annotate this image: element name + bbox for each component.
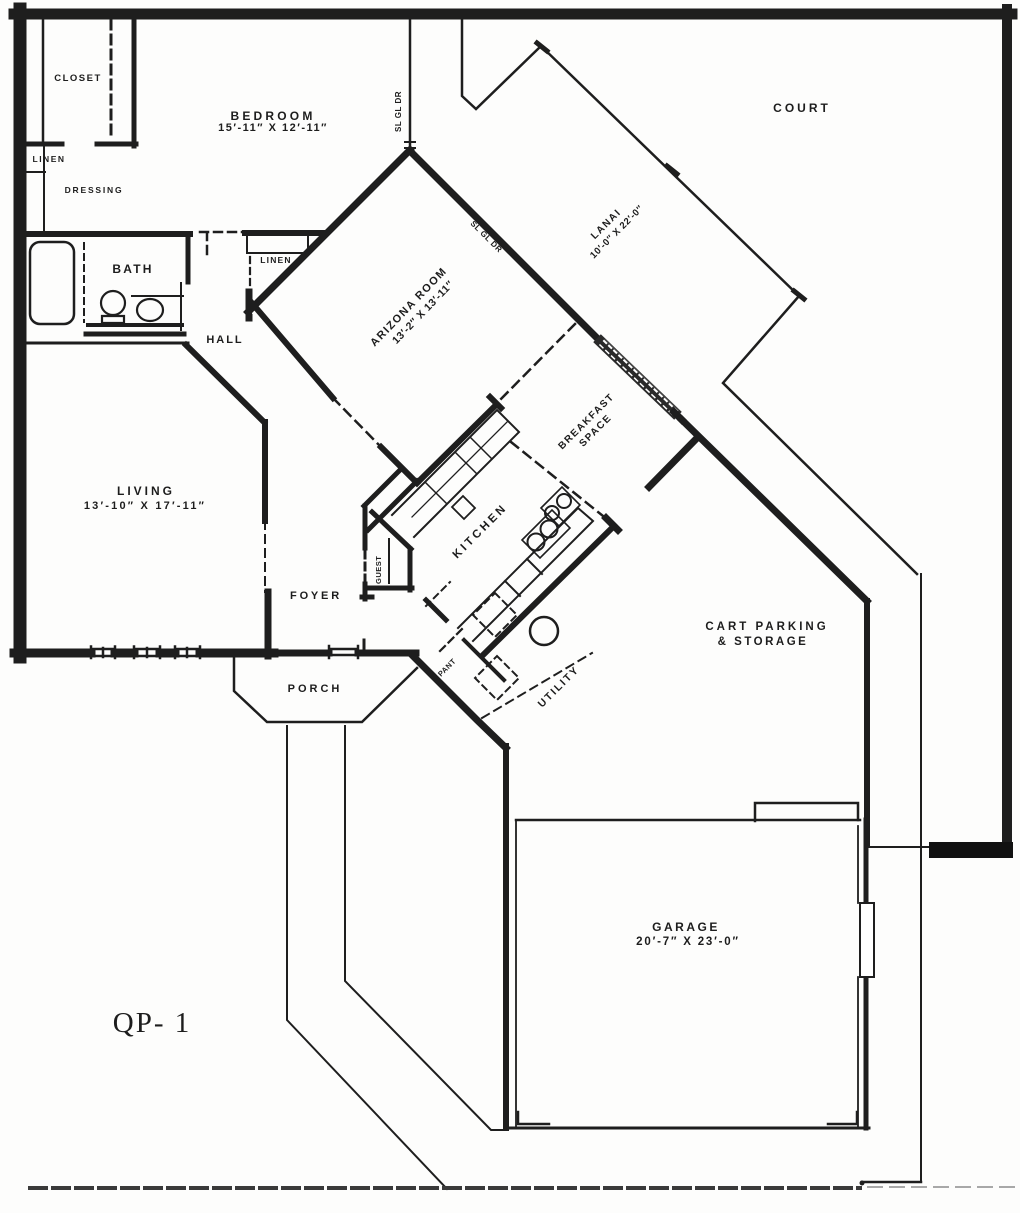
svg-text:QP- 1: QP- 1 <box>113 1007 191 1039</box>
svg-text:CLOSET: CLOSET <box>54 73 102 84</box>
svg-text:LINEN: LINEN <box>260 255 292 265</box>
svg-text:KITCHEN: KITCHEN <box>451 502 510 561</box>
svg-text:DRESSING: DRESSING <box>65 185 124 195</box>
svg-text:COURT: COURT <box>773 101 831 115</box>
svg-text:15′-11″ X 12′-11″: 15′-11″ X 12′-11″ <box>218 122 328 134</box>
svg-text:& STORAGE: & STORAGE <box>718 636 809 648</box>
svg-text:BATH: BATH <box>112 262 153 276</box>
svg-text:HALL: HALL <box>206 334 243 346</box>
svg-text:ARIZONA ROOM: ARIZONA ROOM <box>368 265 450 349</box>
svg-text:CART PARKING: CART PARKING <box>705 621 828 633</box>
svg-text:LIVING: LIVING <box>117 484 175 498</box>
svg-text:SL GL DR: SL GL DR <box>394 91 403 132</box>
svg-text:UTILITY: UTILITY <box>536 664 582 710</box>
svg-text:FOYER: FOYER <box>290 590 342 602</box>
svg-text:13′-10″ X 17′-11″: 13′-10″ X 17′-11″ <box>84 500 206 512</box>
svg-text:LINEN: LINEN <box>33 154 66 164</box>
svg-text:PANT: PANT <box>436 657 458 679</box>
svg-text:GARAGE: GARAGE <box>652 920 720 934</box>
svg-text:PORCH: PORCH <box>288 683 343 695</box>
svg-text:20′-7″ X 23′-0″: 20′-7″ X 23′-0″ <box>636 936 740 948</box>
svg-text:GUEST: GUEST <box>374 556 383 584</box>
svg-text:BEDROOM: BEDROOM <box>230 109 315 123</box>
